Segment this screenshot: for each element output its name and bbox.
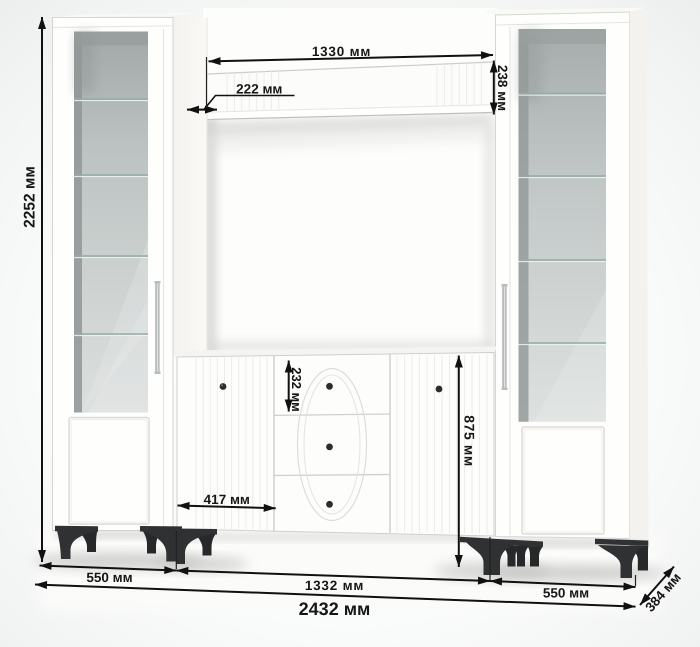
svg-text:238 мм: 238 мм [495,65,510,111]
svg-text:232 мм: 232 мм [289,367,304,412]
svg-text:222 мм: 222 мм [236,82,282,97]
svg-text:2252 мм: 2252 мм [22,166,39,228]
svg-text:1330 мм: 1330 мм [312,44,371,59]
svg-text:417 мм: 417 мм [204,492,250,507]
svg-text:550 мм: 550 мм [86,570,132,585]
svg-text:1332 мм: 1332 мм [305,578,364,593]
svg-text:875 мм: 875 мм [462,415,478,467]
svg-text:2432 мм: 2432 мм [299,599,371,619]
svg-text:550 мм: 550 мм [543,585,589,600]
